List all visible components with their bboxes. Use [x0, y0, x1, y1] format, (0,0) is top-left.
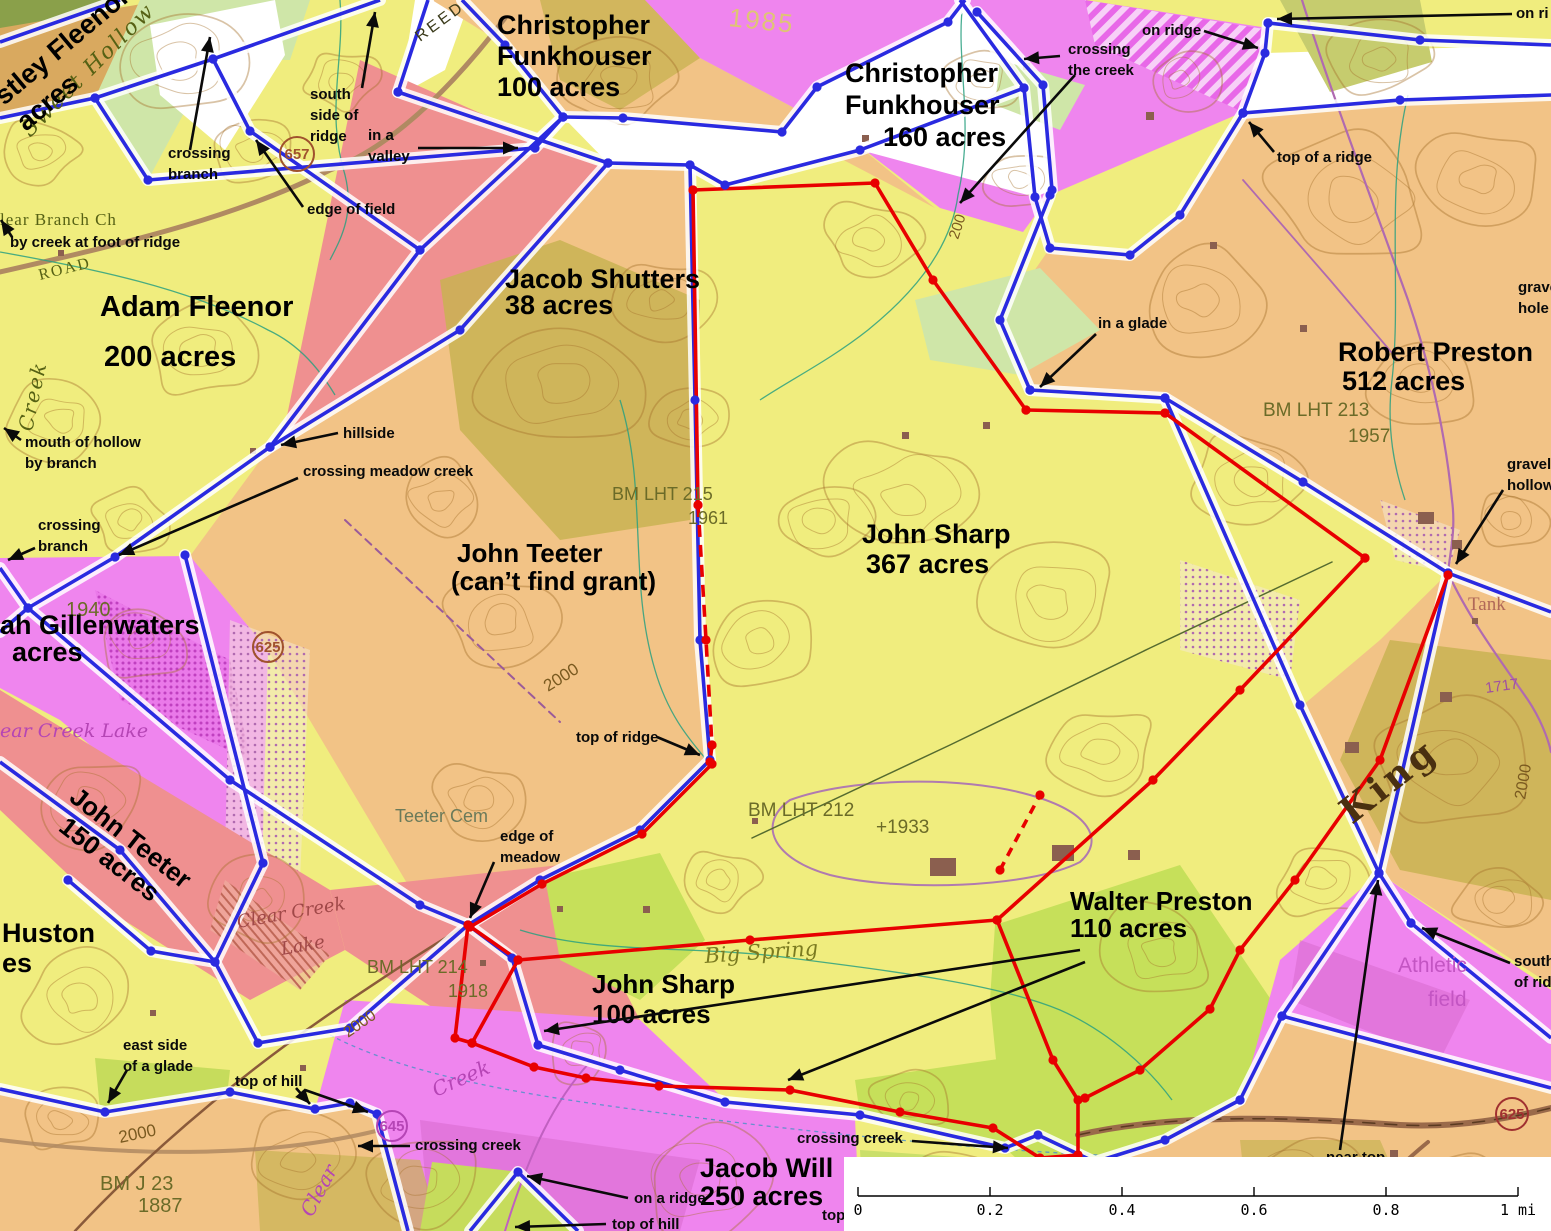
map-label: BM LHT 213	[1263, 400, 1369, 421]
building	[1210, 242, 1217, 249]
owner-label-line: Walter Preston	[1070, 886, 1253, 916]
boundary-vertex	[855, 145, 864, 154]
grant-boundary-red	[1000, 795, 1040, 870]
topo-map: Sweet HollowREEDlear Branch ChROADCreek1…	[0, 0, 1551, 1231]
boundary-vertex	[1235, 685, 1244, 694]
route-marker-number: 657	[284, 146, 309, 163]
map-viewport: Sweet HollowREEDlear Branch ChROADCreek1…	[0, 0, 1551, 1231]
boundary-vertex	[895, 1107, 904, 1116]
contour-line	[713, 601, 811, 687]
scale-tick-label: 0	[853, 1201, 862, 1219]
annotation-text: hole	[1518, 300, 1549, 317]
boundary-vertex	[100, 1107, 109, 1116]
boundary-vertex	[180, 550, 189, 559]
owner-label-line: ah Gillenwaters	[0, 610, 200, 640]
boundary-vertex	[1443, 570, 1452, 579]
annotation-text: branch	[38, 538, 88, 555]
boundary-vertex	[63, 875, 72, 884]
map-label: BM LHT 214	[367, 957, 468, 977]
map-label: BM J 23	[100, 1173, 173, 1195]
building	[1472, 618, 1478, 624]
owner-label-line: Christopher	[497, 10, 651, 40]
map-label: BM LHT 212	[748, 800, 854, 821]
boundary-vertex	[225, 1087, 234, 1096]
building	[1146, 112, 1154, 120]
contour-line	[696, 860, 738, 902]
annotation-arrowhead	[366, 12, 379, 28]
map-label: +1933	[876, 817, 929, 838]
owner-label-line: Funkhouser	[497, 41, 652, 71]
annotation-text: by branch	[25, 455, 97, 472]
annotation-text: in a glade	[1098, 315, 1167, 332]
annotation-text: mouth of hollow	[25, 434, 141, 451]
boundary-vertex	[1263, 18, 1272, 27]
contour-line	[802, 508, 835, 534]
annotation-text: gravel	[1518, 279, 1551, 296]
map-label: 1957	[1348, 426, 1390, 447]
scale-tick-label: 0.6	[1240, 1201, 1267, 1219]
boundary-vertex	[992, 915, 1001, 924]
annotation-text: of rid	[1514, 974, 1551, 991]
boundary-vertex	[720, 180, 729, 189]
boundary-vertex	[1406, 918, 1415, 927]
annotation-text: top	[822, 1207, 845, 1224]
map-label: Tank	[1468, 594, 1506, 615]
contour-line	[706, 869, 730, 890]
boundary-vertex	[558, 112, 567, 121]
boundary-vertex	[1025, 385, 1034, 394]
contour-line	[788, 499, 849, 549]
contour-line	[118, 509, 142, 531]
boundary-vertex	[1235, 1095, 1244, 1104]
boundary-vertex	[654, 1081, 663, 1090]
boundary-vertex	[529, 1062, 538, 1071]
building	[1390, 1150, 1398, 1158]
annotation-text: gravel	[1507, 456, 1551, 473]
boundary-vertex	[1135, 1065, 1144, 1074]
boundary-vertex	[1290, 875, 1299, 884]
annotation-text: east side	[123, 1037, 187, 1054]
map-label: Athletic	[1398, 954, 1467, 977]
boundary-vertex	[455, 325, 464, 334]
boundary-vertex	[1019, 83, 1028, 92]
owner-label-line: 512 acres	[1342, 366, 1465, 396]
boundary-vertex	[1235, 945, 1244, 954]
annotation-text: branch	[168, 166, 218, 183]
route-marker-number: 645	[379, 1118, 404, 1135]
boundary-vertex	[1148, 775, 1157, 784]
annotation: mouth of hollowby branch	[4, 428, 141, 472]
map-label: ear Creek Lake	[0, 720, 148, 742]
boundary-vertex	[988, 1123, 997, 1132]
annotation-text: ridge	[310, 128, 347, 145]
scale-bar: 00.20.40.60.81 mi	[844, 1157, 1551, 1231]
contour-line	[722, 611, 790, 669]
annotation-text: by creek at foot of ridge	[10, 234, 180, 251]
owner-label-line: acres	[12, 637, 83, 667]
boundary-vertex	[1415, 35, 1424, 44]
building	[643, 906, 650, 913]
boundary-vertex	[785, 1085, 794, 1094]
map-label: 1918	[448, 981, 488, 1001]
contour-line	[29, 143, 53, 161]
boundary-vertex	[1045, 243, 1054, 252]
map-label: 1887	[138, 1195, 183, 1217]
contour-line	[1027, 585, 1068, 619]
contour-line	[62, 983, 98, 1013]
boundary-vertex	[1260, 48, 1269, 57]
boundary-vertex	[812, 82, 821, 91]
boundary-vertex	[701, 635, 710, 644]
owner-label-line: Huston	[2, 918, 95, 948]
boundary-vertex	[265, 442, 274, 451]
boundary-vertex	[1395, 95, 1404, 104]
annotation-text: valley	[368, 148, 410, 165]
boundary-vertex	[1160, 393, 1169, 402]
scale-tick-label: 0.8	[1372, 1201, 1399, 1219]
map-label: Teeter Cem	[395, 806, 488, 826]
annotation-text: on ridge	[1142, 22, 1201, 39]
boundary-vertex	[690, 395, 699, 404]
boundary-vertex	[972, 7, 981, 16]
building	[150, 1010, 156, 1016]
boundary-vertex	[465, 922, 474, 931]
boundary-vertex	[143, 175, 152, 184]
building	[480, 960, 486, 966]
boundary-vertex	[530, 143, 539, 152]
annotation-text: top of hill	[612, 1216, 679, 1231]
owner-label: Adam Fleenor200 acres	[100, 291, 293, 373]
annotation-text: of a glade	[123, 1058, 193, 1075]
annotation-text: on a ridge	[634, 1190, 706, 1207]
boundary-vertex	[146, 946, 155, 955]
contour-line	[836, 215, 902, 267]
map-label: field	[1428, 988, 1467, 1011]
contour-line	[44, 409, 73, 433]
route-marker-number: 625	[1499, 1106, 1524, 1123]
owner-label-line: Robert Preston	[1338, 337, 1533, 367]
boundary-vertex	[467, 1038, 476, 1047]
contour-line	[746, 628, 774, 654]
boundary-vertex	[90, 93, 99, 102]
owner-label: Jacob Will250 acres	[700, 1153, 833, 1211]
contour-line	[21, 947, 128, 1044]
boundary-vertex	[720, 1097, 729, 1106]
owner-label-line: John Teeter	[457, 538, 602, 568]
building	[1128, 850, 1140, 860]
annotation-text: crossing creek	[797, 1130, 904, 1147]
grant-boundary-red	[1026, 410, 1165, 413]
annotation-text: edge of field	[307, 201, 395, 218]
annotation-text: crossing	[38, 517, 101, 534]
annotation: crossingbranch	[8, 517, 101, 560]
contour-line	[853, 228, 885, 252]
boundary-vertex	[393, 87, 402, 96]
region-khaki-bl	[255, 1150, 440, 1231]
boundary-vertex	[1021, 405, 1030, 414]
boundary-vertex	[637, 829, 646, 838]
boundary-vertex	[1035, 790, 1044, 799]
boundary-vertex	[1045, 190, 1054, 199]
boundary-vertex	[513, 1167, 522, 1176]
boundary-vertex	[688, 185, 697, 194]
boundary-vertex	[537, 879, 546, 888]
annotation-text: on ri	[1516, 5, 1549, 22]
boundary-vertex	[1160, 1135, 1169, 1144]
building	[1440, 692, 1452, 702]
boundary-vertex	[310, 1104, 319, 1113]
annotation-text: crossing	[168, 145, 231, 162]
boundary-vertex	[210, 957, 219, 966]
annotation-text: top of a ridge	[1277, 149, 1372, 166]
owner-label-line: (can’t find grant)	[451, 566, 656, 596]
boundary-vertex	[615, 1065, 624, 1074]
boundary-vertex	[870, 178, 879, 187]
annotation-text: crossing	[1068, 41, 1131, 58]
boundary-vertex	[1125, 250, 1134, 259]
contour-line	[47, 967, 113, 1032]
annotation-text: in a	[368, 127, 394, 144]
annotation-text: edge of	[500, 828, 554, 845]
building	[1418, 512, 1434, 524]
boundary-vertex	[450, 1033, 459, 1042]
boundary-vertex	[533, 1040, 542, 1049]
owner-label-line: 250 acres	[700, 1181, 823, 1211]
boundary-vertex	[1160, 408, 1169, 417]
annotation-arrowhead	[788, 1068, 804, 1080]
boundary-vertex	[1298, 477, 1307, 486]
boundary-vertex	[777, 127, 786, 136]
boundary-vertex	[581, 1073, 590, 1082]
boundary-vertex	[415, 245, 424, 254]
boundary-vertex	[928, 275, 937, 284]
owner-label-line: Adam Fleenor	[100, 291, 293, 323]
contour-line	[977, 542, 1110, 647]
scale-tick-label: 0.4	[1108, 1201, 1135, 1219]
owner-label-line: es	[2, 948, 32, 978]
boundary-vertex	[1374, 868, 1383, 877]
map-label: 200	[946, 212, 970, 241]
owner-label-line: 367 acres	[866, 549, 989, 579]
route-marker-number: 625	[255, 639, 280, 656]
boundary-vertex	[685, 160, 694, 169]
regions-layer	[0, 0, 1551, 1231]
contour-line	[1305, 867, 1336, 889]
building	[1345, 742, 1359, 753]
annotation-text: crossing creek	[415, 1137, 522, 1154]
boundary-vertex	[707, 740, 716, 749]
building	[902, 432, 909, 439]
building	[300, 1065, 306, 1071]
owner-label-line: Christopher	[845, 58, 999, 88]
boundary-vertex	[618, 113, 627, 122]
scale-tick-label: 0.2	[976, 1201, 1003, 1219]
boundary-vertex	[1360, 553, 1369, 562]
boundary-vertex	[1238, 108, 1247, 117]
boundary-vertex	[415, 900, 424, 909]
building	[930, 858, 956, 876]
boundary-vertex	[245, 126, 254, 135]
building	[1452, 540, 1462, 549]
owner-label-line: 100 acres	[497, 72, 620, 102]
boundary-vertex	[1277, 1011, 1286, 1020]
annotation-text: south	[1514, 953, 1551, 970]
building	[557, 906, 563, 912]
boundary-vertex	[253, 1038, 262, 1047]
scale-bar-panel	[844, 1157, 1551, 1231]
boundary-vertex	[855, 1110, 864, 1119]
boundary-vertex	[110, 552, 119, 561]
owner-label-line: Jacob Will	[700, 1153, 833, 1183]
owner-label-line: John Sharp	[862, 519, 1011, 549]
boundary-vertex	[1030, 192, 1039, 201]
boundary-vertex	[995, 865, 1004, 874]
contour-line	[881, 484, 926, 515]
annotation-text: crossing meadow creek	[303, 463, 474, 480]
boundary-vertex	[225, 775, 234, 784]
annotation-text: side of	[310, 107, 359, 124]
boundary-vertex	[1033, 1130, 1042, 1139]
boundary-vertex	[707, 759, 716, 768]
annotation: top	[822, 1207, 845, 1224]
annotation-text: the creek	[1068, 62, 1135, 79]
boundary-vertex	[208, 54, 217, 63]
boundary-vertex	[1205, 1004, 1214, 1013]
scale-tick-label: 1 mi	[1500, 1201, 1536, 1219]
annotation-text: meadow	[500, 849, 560, 866]
annotation-text: hillside	[343, 425, 395, 442]
contour-line	[17, 135, 66, 169]
annotation-text: top of hill	[235, 1073, 302, 1090]
boundary-vertex	[1175, 210, 1184, 219]
boundary-vertex	[513, 955, 522, 964]
contour-line	[1046, 715, 1151, 797]
owner-label-line: John Sharp	[592, 969, 735, 999]
boundary-vertex	[943, 17, 952, 26]
building	[1300, 325, 1307, 332]
boundary-vertex	[1048, 1055, 1057, 1064]
annotation-text: hollow	[1507, 477, 1551, 494]
contour-line	[1081, 739, 1120, 764]
boundary-vertex	[603, 158, 612, 167]
owner-label-line: 38 acres	[505, 290, 613, 320]
contour-line	[1016, 567, 1096, 642]
map-label: BM LHT 215	[612, 484, 713, 504]
owner-label-line: 160 acres	[883, 122, 1006, 152]
boundary-vertex	[258, 858, 267, 867]
map-label: lear Branch Ch	[0, 210, 117, 229]
map-label: Creek	[13, 359, 51, 433]
annotation-text: south	[310, 86, 351, 103]
contour-line	[1060, 723, 1139, 781]
boundary-vertex	[995, 315, 1004, 324]
owner-label-line: 200 acres	[104, 341, 236, 373]
building	[983, 422, 990, 429]
map-label: 1961	[688, 508, 728, 528]
boundary-vertex	[1038, 80, 1047, 89]
boundary-vertex	[1080, 1093, 1089, 1102]
owner-label-line: 110 acres	[1070, 913, 1187, 943]
annotation-text: top of ridge	[576, 729, 659, 746]
owner-label: John Sharp367 acres	[862, 519, 1011, 579]
owner-label-line: Funkhouser	[845, 90, 1000, 120]
boundary-vertex	[1295, 700, 1304, 709]
